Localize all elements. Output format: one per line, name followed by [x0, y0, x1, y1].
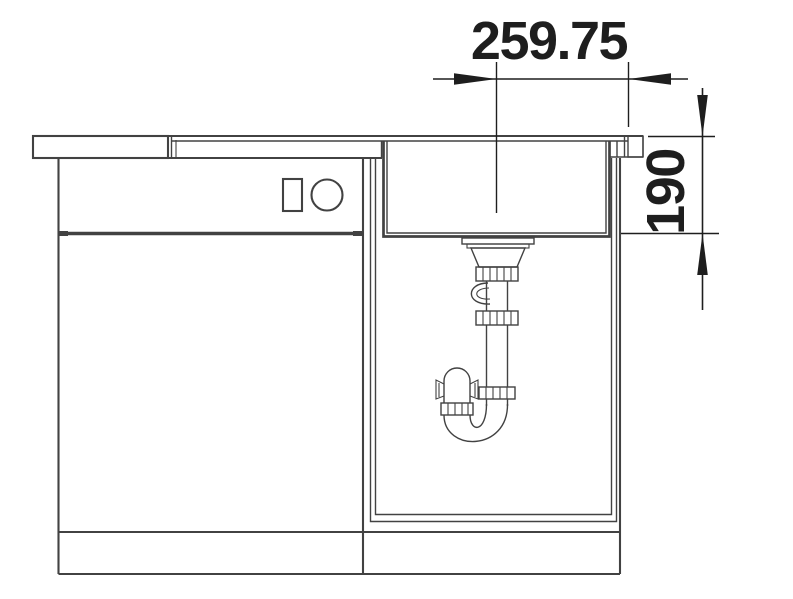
overflow-elbow-outer — [471, 283, 490, 304]
dishwasher — [59, 179, 364, 234]
width-arrow-left — [454, 73, 497, 85]
trap-u-bend-outer — [444, 404, 508, 442]
strainer-body — [471, 248, 525, 267]
strainer-flange — [462, 238, 534, 244]
drawing-canvas: 259.75 190 — [0, 0, 793, 599]
width-arrow-right — [629, 73, 672, 85]
trap-cap-dome — [444, 368, 470, 381]
trap-wing-right — [470, 380, 478, 399]
overflow-elbow-inner — [477, 288, 490, 299]
trap-inlet-nut — [479, 387, 515, 399]
trap-wing-left — [436, 380, 444, 399]
sink-cabinet-carcass-outer — [371, 158, 617, 522]
countertop — [33, 136, 643, 158]
technical-drawing-sink-installation: 259.75 190 — [0, 0, 793, 599]
depth-dimension: 190 — [621, 88, 719, 310]
depth-arrow-top — [697, 95, 708, 137]
countertop-cross-section-left — [33, 136, 168, 158]
base-cabinets — [59, 158, 621, 574]
dishwasher-display-icon — [283, 179, 302, 211]
depth-dimension-label: 190 — [636, 149, 696, 235]
drain-assembly — [436, 238, 534, 442]
sink-cabinet-carcass-inner — [376, 158, 612, 515]
sink — [171, 136, 628, 237]
dishwasher-dial-icon — [312, 180, 343, 211]
depth-arrow-bottom — [697, 234, 708, 276]
width-dimension-label: 259.75 — [471, 11, 628, 71]
